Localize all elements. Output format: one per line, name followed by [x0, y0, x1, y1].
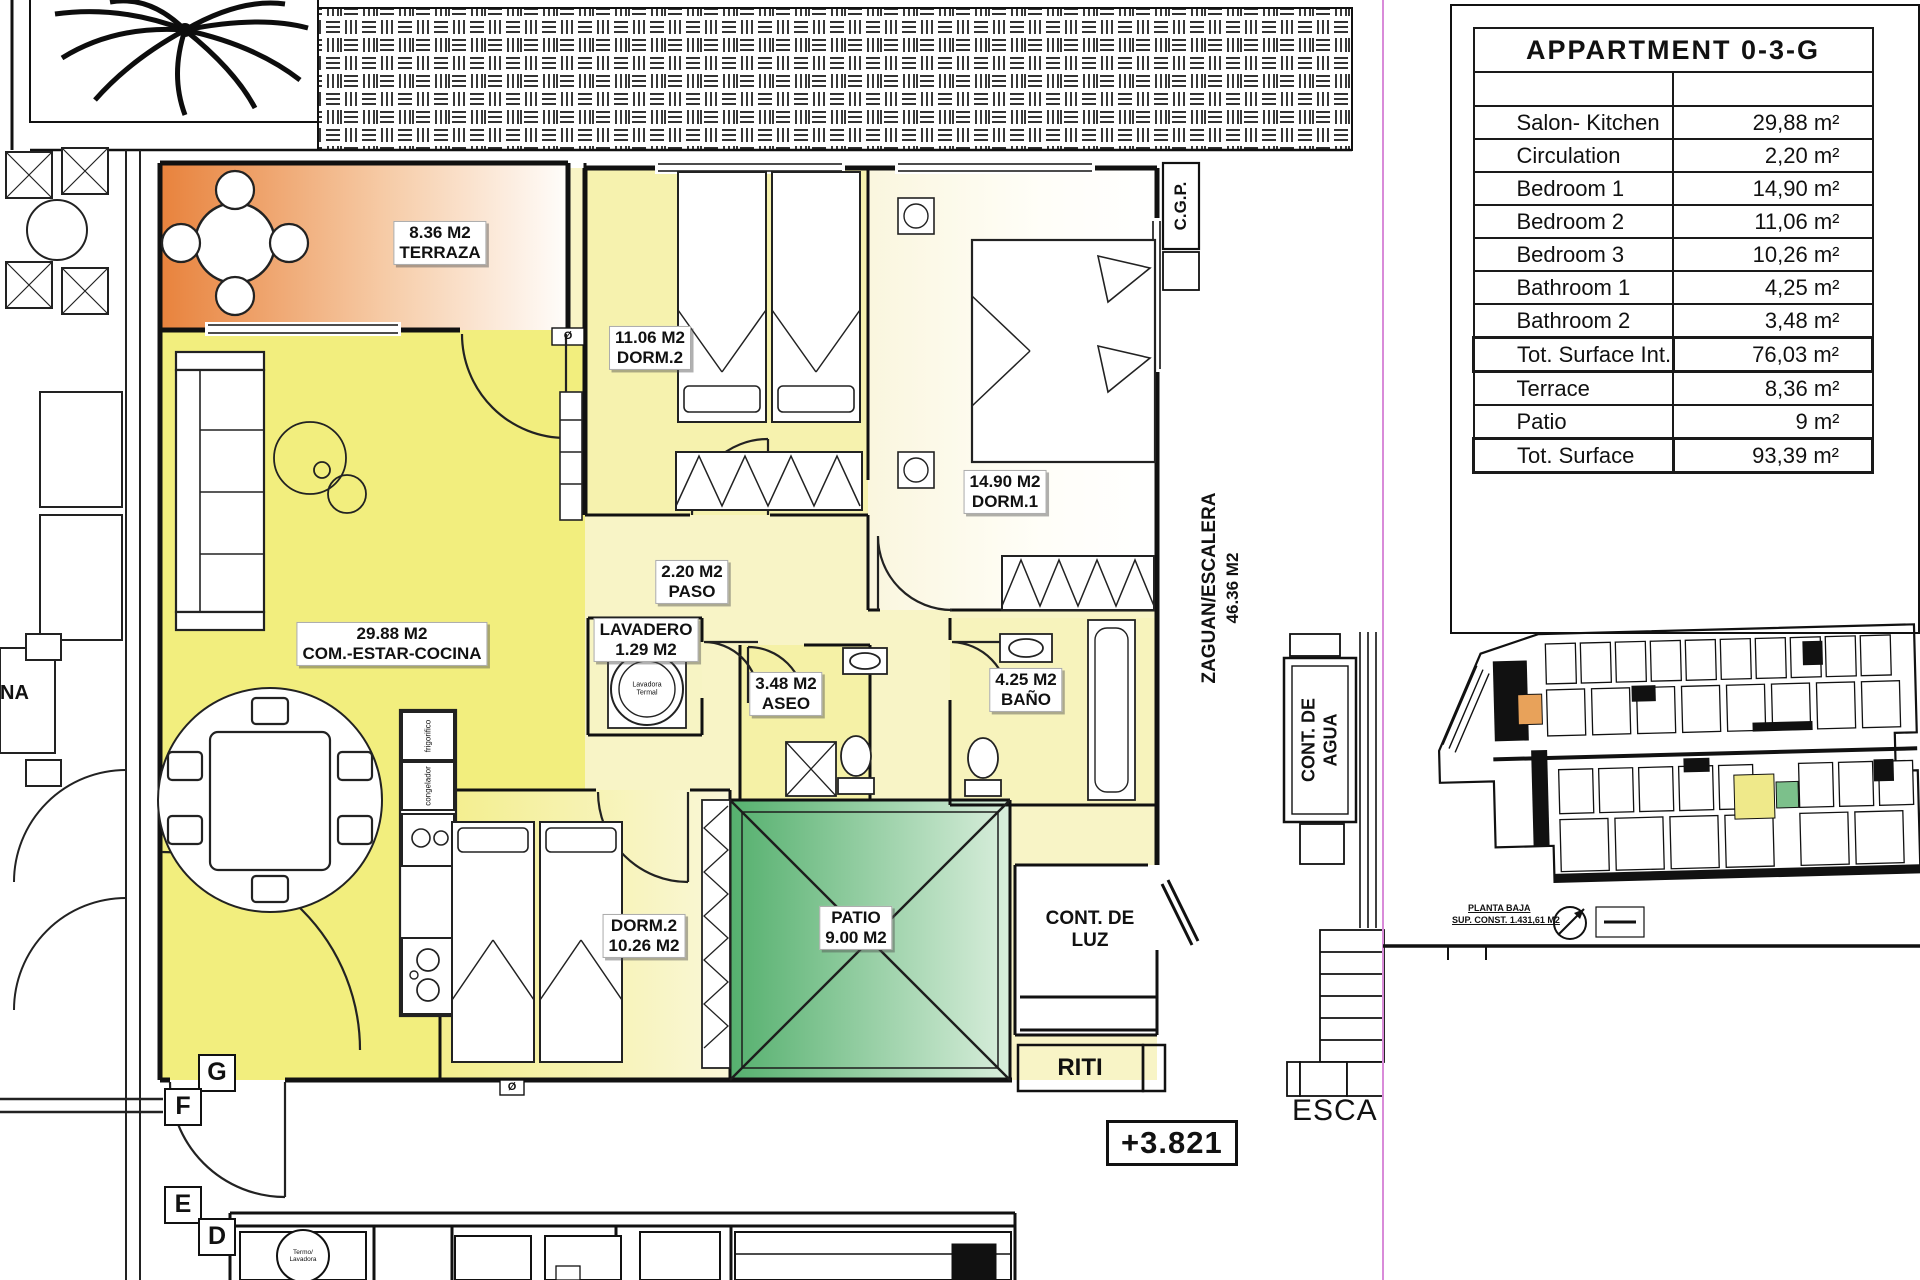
label-terraza: 8.36 M2 TERRAZA	[393, 221, 486, 265]
stairs	[1287, 930, 1384, 1096]
label-patio: PATIO 9.00 M2	[819, 906, 892, 950]
minimap	[1436, 624, 1920, 944]
washer-label: Lavadora Termal	[632, 681, 661, 696]
kitchen-units	[400, 710, 456, 1016]
table-row-total-int: Tot. Surface Int. 76,03 m²	[1474, 338, 1873, 372]
table-row: Bathroom 1 4,25 m²	[1474, 271, 1873, 304]
area-table: APPARTMENT 0-3-G Salon- Kitchen 29,88 m²…	[1472, 27, 1874, 474]
fridge-label: frigorifico	[424, 720, 433, 752]
dining-set	[158, 688, 382, 912]
label-cont-agua: CONT. DE AGUA	[1298, 698, 1341, 782]
table-row: Terrace 8,36 m²	[1474, 372, 1873, 406]
drain-icon: Ø	[564, 330, 573, 342]
grid-letter-g: G	[198, 1054, 236, 1092]
compass-icon	[1554, 907, 1644, 939]
grid-letter-e: E	[164, 1186, 202, 1224]
table-row: Salon- Kitchen 29,88 m²	[1474, 106, 1873, 139]
grid-letter-d: D	[198, 1218, 236, 1256]
bottom-unit	[230, 1213, 1015, 1280]
table-row: Bedroom 2 11,06 m²	[1474, 205, 1873, 238]
boiler-label: Termo/ Lavadora	[289, 1249, 316, 1263]
level-mark: +3.821	[1106, 1120, 1238, 1166]
label-riti: RITI	[1057, 1054, 1102, 1082]
bedroom2-wardrobe	[676, 452, 862, 510]
label-salon: 29.88 M2 COM.-ESTAR-COCINA	[296, 622, 487, 666]
label-paso: 2.20 M2 PASO	[655, 560, 728, 604]
label-dorm3: DORM.2 10.26 M2	[603, 914, 686, 958]
grid-letter-f: F	[164, 1088, 202, 1126]
radiator	[560, 392, 582, 520]
bedroom1-wardrobe	[1002, 556, 1154, 610]
minimap-caption-line2: SUP. CONST. 1.431,61 M2	[1452, 915, 1560, 925]
table-row: Patio 9 m²	[1474, 405, 1873, 439]
label-lavadero: LAVADERO 1.29 M2	[594, 618, 699, 662]
minimap-caption-line1: PLANTA BAJA	[1468, 903, 1531, 913]
table-row-total: Tot. Surface 93,39 m²	[1474, 439, 1873, 473]
table-row: Bedroom 3 10,26 m²	[1474, 238, 1873, 271]
table-row: Circulation 2,20 m²	[1474, 139, 1873, 172]
left-neighbour	[0, 148, 163, 1280]
sofa	[176, 352, 264, 630]
table-row: Bathroom 2 3,48 m²	[1474, 304, 1873, 338]
table-blank-row	[1474, 72, 1873, 106]
label-bano: 4.25 M2 BAÑO	[989, 668, 1062, 712]
drain-icon: Ø	[508, 1081, 517, 1093]
table-title: APPARTMENT 0-3-G	[1474, 28, 1873, 72]
pergola-band	[12, 0, 1352, 150]
floorplan-page: 8.36 M2 TERRAZA 11.06 M2 DORM.2 14.90 M2…	[0, 0, 1920, 1280]
label-na: NA	[0, 682, 29, 705]
label-dorm2-top: 11.06 M2 DORM.2	[609, 326, 691, 370]
freezer-label: congelador	[424, 766, 433, 806]
label-dorm1: 14.90 M2 DORM.1	[964, 470, 1047, 514]
table-row: Bedroom 1 14,90 m²	[1474, 172, 1873, 205]
label-cgp: C.G.P.	[1171, 182, 1191, 231]
table-header-row: APPARTMENT 0-3-G	[1474, 28, 1873, 72]
label-aseo: 3.48 M2 ASEO	[749, 672, 822, 716]
label-cont-luz: CONT. DE LUZ	[1046, 908, 1135, 952]
label-escalera: ESCA	[1292, 1094, 1378, 1128]
info-panel: APPARTMENT 0-3-G Salon- Kitchen 29,88 m²…	[1450, 4, 1920, 634]
label-zaguan: ZAGUAN/ESCALERA 46.36 M2	[1199, 492, 1245, 683]
bedroom3-wardrobe	[702, 800, 730, 1068]
